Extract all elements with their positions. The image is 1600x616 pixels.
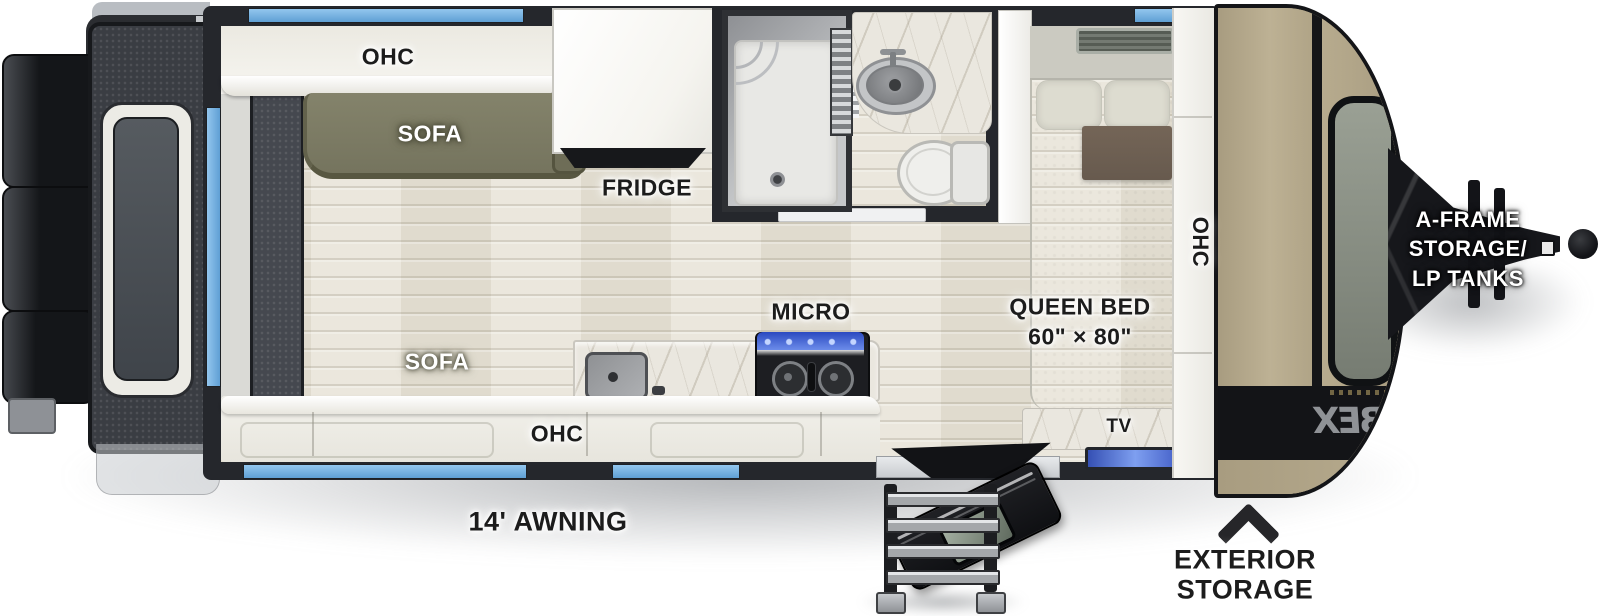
stove-burner-right-cap — [830, 373, 838, 381]
fridge-base — [560, 148, 706, 168]
stove-led-glow — [757, 350, 864, 356]
kitchen-sink-drain — [608, 372, 618, 382]
label-exterior-storage-line2: STORAGE — [1177, 575, 1314, 606]
rear-interior-wall-strip — [221, 88, 251, 412]
front-cabinet-seam-2 — [1174, 352, 1212, 354]
toilet-tank — [950, 141, 990, 205]
vanity-sink-drain — [887, 77, 903, 93]
rear-window-glass — [113, 117, 179, 381]
stove-burner-left-cap — [784, 373, 792, 381]
step-tread-4 — [886, 570, 1000, 585]
window-bottom-left — [243, 464, 527, 479]
step-tread-3 — [886, 544, 1000, 559]
step-foot-left — [876, 592, 906, 614]
bed-throw-blanket — [1082, 126, 1172, 180]
label-queen-bed-size: 60" × 80" — [1028, 324, 1132, 351]
cap-front-window — [1328, 96, 1398, 386]
rear-bumper-foot — [8, 398, 56, 434]
cap-lower-band — [1218, 460, 1402, 494]
bed-pillow-right — [1104, 80, 1170, 130]
rear-lower-flap — [96, 444, 220, 495]
hitch-jack-knob — [1568, 229, 1598, 259]
stove-led-strip — [757, 332, 864, 350]
cap-skirt-band: IBEX — [1218, 386, 1402, 460]
label-exterior-storage-line1: EXTERIOR — [1174, 545, 1316, 576]
bed-pillow-left — [1036, 80, 1102, 130]
window-bottom-kitchen — [612, 464, 740, 479]
label-sofa-top: SOFA — [398, 121, 463, 148]
label-aframe-line3: LP TANKS — [1412, 266, 1524, 292]
fridge — [552, 8, 716, 154]
label-ohc-bottom: OHC — [531, 421, 584, 448]
label-awning: 14' AWNING — [469, 507, 628, 538]
rear-cargo-box-bottom — [2, 310, 96, 404]
cabinet-recess-left — [240, 422, 494, 458]
cap-brand-graphic: IBEX — [1310, 396, 1401, 446]
ceiling-vent — [1076, 28, 1174, 54]
window-top-left — [248, 8, 524, 23]
label-aframe-line2: STORAGE/ — [1409, 236, 1528, 262]
overhead-cabinet-bottom-lip — [221, 396, 880, 414]
tv-screen — [1085, 447, 1177, 470]
stove-center-slot — [807, 362, 816, 392]
label-tv: TV — [1106, 416, 1131, 438]
step-tread-1 — [886, 492, 1000, 507]
hitch-coupler-latch — [1540, 240, 1555, 256]
label-aframe-line1: A-FRAME — [1416, 207, 1521, 233]
rear-wardrobe — [250, 93, 304, 406]
cabinet-seam-3 — [820, 412, 822, 456]
cabinet-seam-2 — [586, 412, 588, 456]
cap-decal-dashes — [1330, 390, 1396, 395]
front-cabinet-seam-1 — [1174, 116, 1212, 118]
step-foot-right — [976, 592, 1006, 614]
window-rear-wall — [206, 107, 221, 387]
kitchen-faucet-icon — [652, 386, 665, 395]
label-sofa-bottom: SOFA — [405, 349, 470, 376]
shower-drain — [770, 172, 785, 187]
label-ohc-top: OHC — [362, 44, 415, 71]
rv-floorplan-image: IBEX OHC SOFA FRIDGE MICRO SOFA OHC QUEE… — [0, 0, 1600, 616]
label-queen-bed: QUEEN BED — [1009, 294, 1150, 321]
cabinet-recess-right — [650, 422, 804, 458]
front-cap: IBEX — [1214, 4, 1406, 498]
shower-door-louvers — [830, 28, 853, 136]
step-tread-2 — [886, 518, 1000, 533]
label-ohc-front: OHC — [1187, 217, 1213, 267]
label-fridge: FRIDGE — [602, 175, 692, 202]
label-micro: MICRO — [771, 299, 850, 326]
faucet-stem — [890, 52, 896, 67]
bedroom-wardrobe — [998, 10, 1032, 224]
